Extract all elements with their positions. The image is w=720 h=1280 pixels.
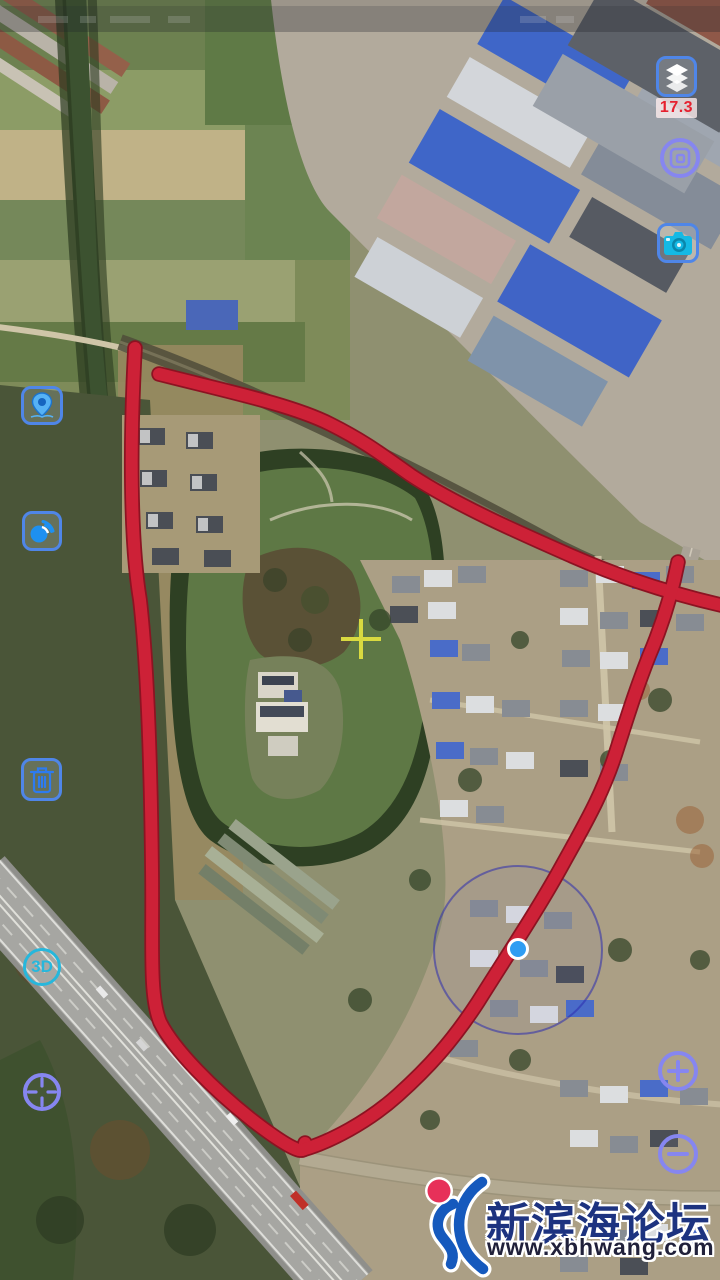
zoom-in-button[interactable] [658, 1051, 698, 1091]
minus-icon [667, 1143, 689, 1165]
nearby-radar-icon [28, 517, 56, 545]
blue-dot-icon [509, 940, 528, 959]
plus-icon [667, 1060, 689, 1082]
map-app-screen: 17.3 3D [0, 0, 720, 1280]
location-pin-icon [28, 392, 56, 420]
delete-annotation-button[interactable] [21, 758, 62, 801]
compass-target-button[interactable] [23, 1073, 61, 1111]
location-pin-button[interactable] [21, 386, 63, 425]
trash-icon [29, 765, 55, 795]
view-3d-label: 3D [31, 957, 53, 977]
screen-capture-button[interactable] [660, 138, 700, 178]
layers-icon [662, 62, 692, 92]
layers-button[interactable] [656, 56, 697, 97]
camera-button[interactable] [657, 223, 699, 263]
zoom-out-button[interactable] [658, 1134, 698, 1174]
view-3d-button[interactable]: 3D [23, 948, 61, 986]
compass-target-icon [27, 1077, 57, 1107]
screen-capture-icon [669, 147, 691, 169]
villa-cluster [122, 415, 260, 573]
camera-icon [663, 230, 693, 256]
status-bar [0, 0, 720, 32]
satellite-map[interactable] [0, 0, 720, 1280]
nearby-radar-button[interactable] [22, 511, 62, 551]
zoom-level-badge: 17.3 [656, 98, 697, 118]
